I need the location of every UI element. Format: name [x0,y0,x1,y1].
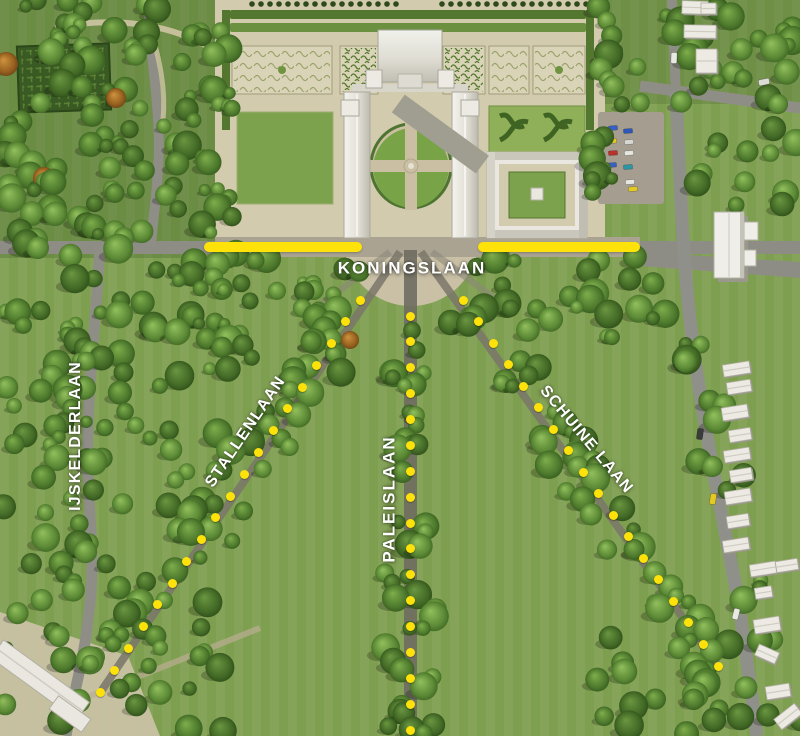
terrain-illustration [0,0,800,736]
park-map: KONINGSLAANIJSKELDERLAANSTALLENLAANPALEI… [0,0,800,736]
